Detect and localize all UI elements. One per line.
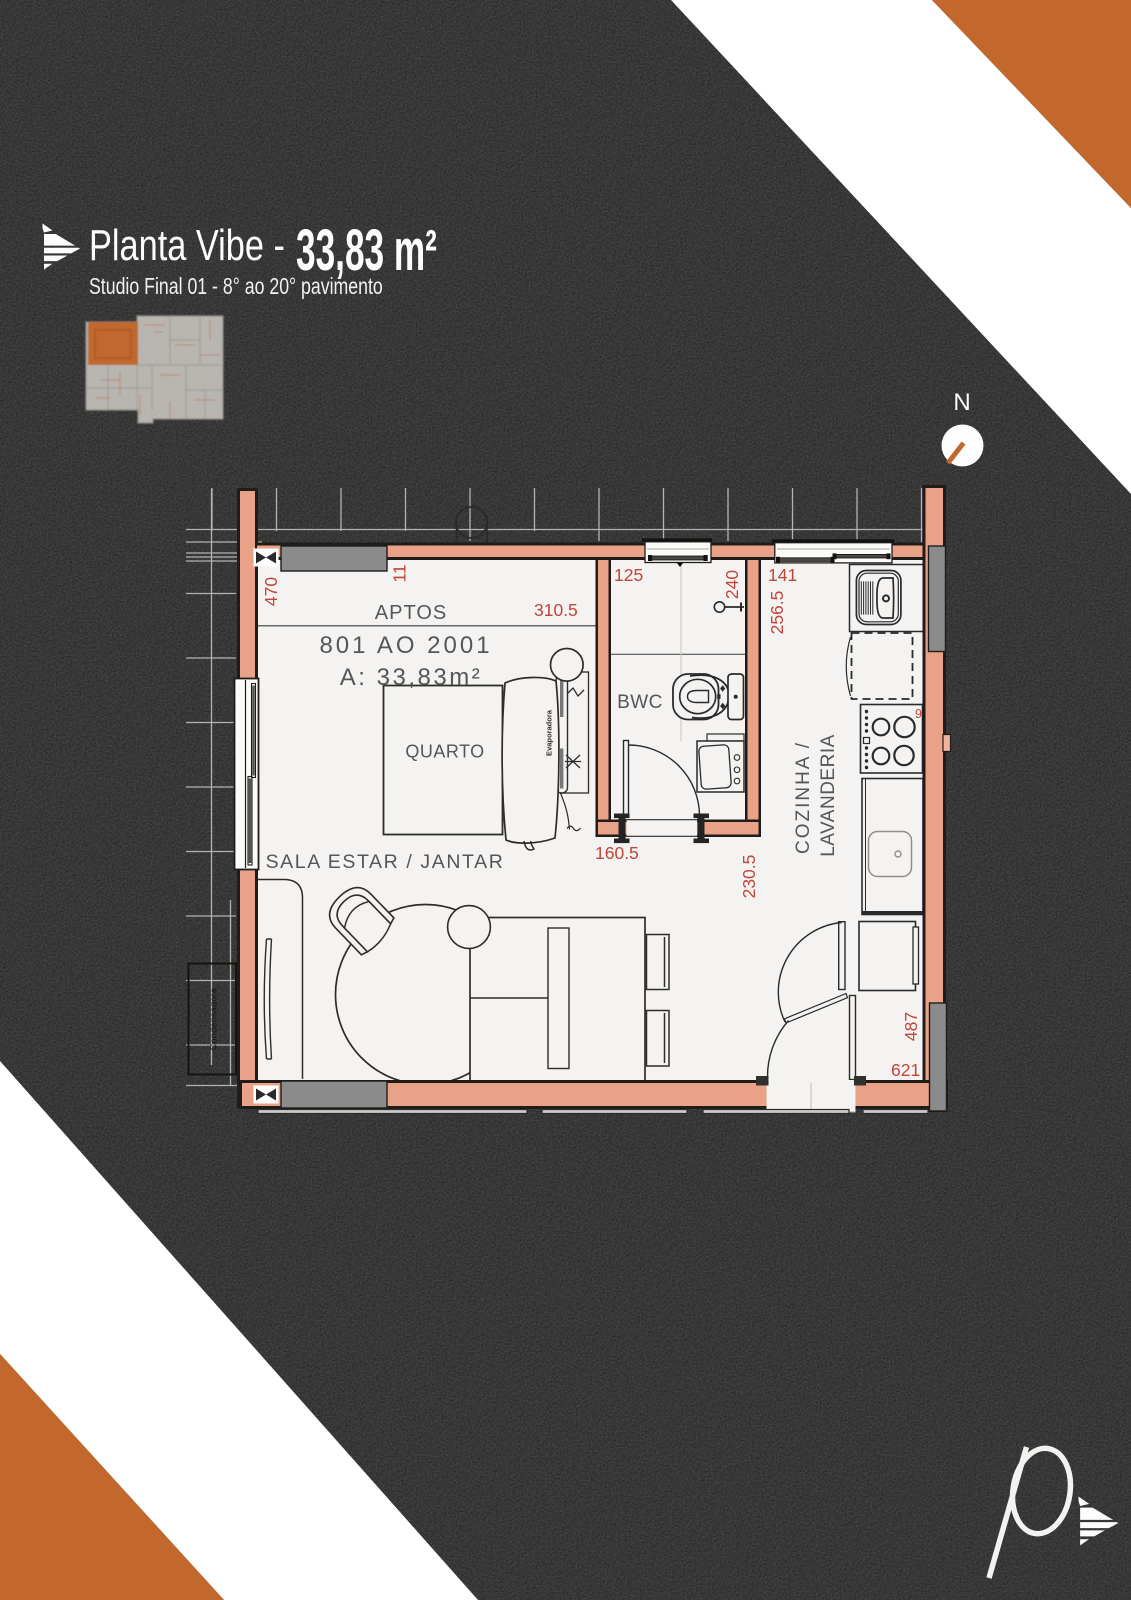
svg-text:141: 141	[768, 565, 797, 585]
svg-text:9: 9	[915, 707, 922, 721]
svg-text:240: 240	[722, 570, 742, 599]
svg-text:125: 125	[614, 565, 643, 585]
svg-text:APTOS: APTOS	[375, 602, 447, 624]
svg-text:A: 33,83m²: A: 33,83m²	[340, 664, 482, 691]
svg-text:11: 11	[390, 564, 410, 582]
svg-text:310.5: 310.5	[534, 600, 578, 620]
svg-text:BWC: BWC	[617, 692, 663, 713]
svg-text:QUARTO: QUARTO	[405, 742, 484, 762]
svg-text:256.5: 256.5	[767, 591, 787, 635]
svg-text:Condensadora: Condensadora	[209, 988, 219, 1051]
svg-text:487: 487	[901, 1012, 921, 1041]
svg-text:230.5: 230.5	[739, 855, 759, 899]
svg-text:801 AO 2001: 801 AO 2001	[319, 632, 492, 659]
svg-text:160.5: 160.5	[595, 843, 639, 863]
svg-text:LAVANDERIA: LAVANDERIA	[818, 734, 839, 857]
svg-text:SALA ESTAR / JANTAR: SALA ESTAR / JANTAR	[266, 851, 505, 873]
svg-text:621: 621	[891, 1060, 920, 1080]
svg-text:Evaporadora: Evaporadora	[545, 709, 554, 756]
svg-text:470: 470	[261, 577, 281, 606]
svg-text:COZINHA /: COZINHA /	[793, 741, 814, 854]
